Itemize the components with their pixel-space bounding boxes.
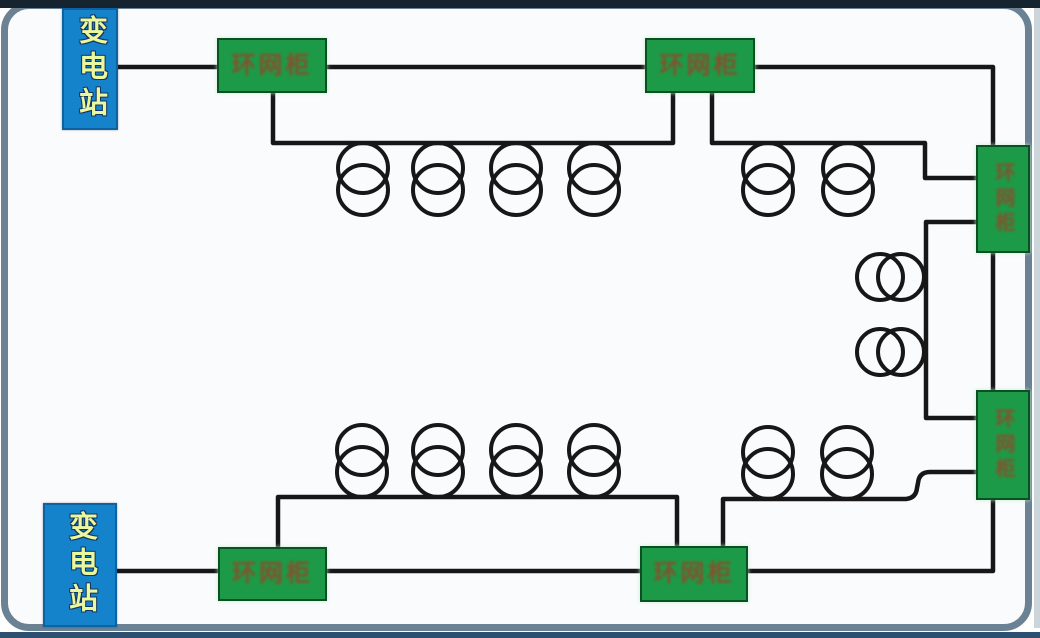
rmu-top-right-node: 环网柜 bbox=[645, 38, 755, 93]
transformer-icon bbox=[857, 329, 924, 375]
diagram-canvas: 变电站 变电站 环网柜 环网柜 环网柜 环网柜 环网柜 环网柜 bbox=[0, 0, 1040, 638]
substation-bottom-node: 变电站 bbox=[43, 503, 117, 627]
transformer-icon bbox=[857, 254, 924, 300]
transformer-icon bbox=[743, 143, 793, 215]
transformer-icon bbox=[491, 143, 541, 215]
wire-right-middle-branch bbox=[926, 222, 980, 418]
rmu-right-lower-label: 环网柜 bbox=[993, 408, 1013, 483]
transformer-icon bbox=[338, 143, 388, 215]
rmu-right-upper-label: 环网柜 bbox=[993, 162, 1013, 237]
transformer-icon bbox=[491, 425, 541, 497]
wire-bottom-left-branch bbox=[278, 497, 677, 549]
rmu-bottom-right-node: 环网柜 bbox=[640, 546, 748, 602]
rmu-bottom-left-label: 环网柜 bbox=[232, 562, 313, 586]
transformer-icon bbox=[413, 143, 463, 215]
transformer-icon bbox=[337, 425, 387, 497]
rmu-right-upper-node: 环网柜 bbox=[976, 145, 1030, 253]
wire-bottom-right-branch bbox=[723, 472, 980, 549]
wire-top-left-branch bbox=[273, 90, 673, 143]
transformer-icon bbox=[569, 143, 619, 215]
rmu-bottom-right-label: 环网柜 bbox=[654, 562, 735, 586]
transformer-icon bbox=[413, 425, 463, 497]
substation-bottom-label: 变电站 bbox=[66, 511, 95, 619]
substation-top-label: 变电站 bbox=[76, 15, 105, 123]
transformer-icon bbox=[823, 143, 873, 215]
transformer-icon bbox=[822, 427, 872, 499]
rmu-top-left-label: 环网柜 bbox=[232, 54, 313, 78]
substation-top-node: 变电站 bbox=[62, 8, 118, 130]
wiring-layer bbox=[0, 0, 1040, 638]
rmu-top-left-node: 环网柜 bbox=[217, 38, 327, 93]
transformer-icon bbox=[743, 427, 793, 499]
rmu-top-right-label: 环网柜 bbox=[660, 54, 741, 78]
rmu-right-lower-node: 环网柜 bbox=[976, 390, 1030, 500]
rmu-bottom-left-node: 环网柜 bbox=[218, 547, 327, 601]
transformer-icon bbox=[569, 425, 619, 497]
